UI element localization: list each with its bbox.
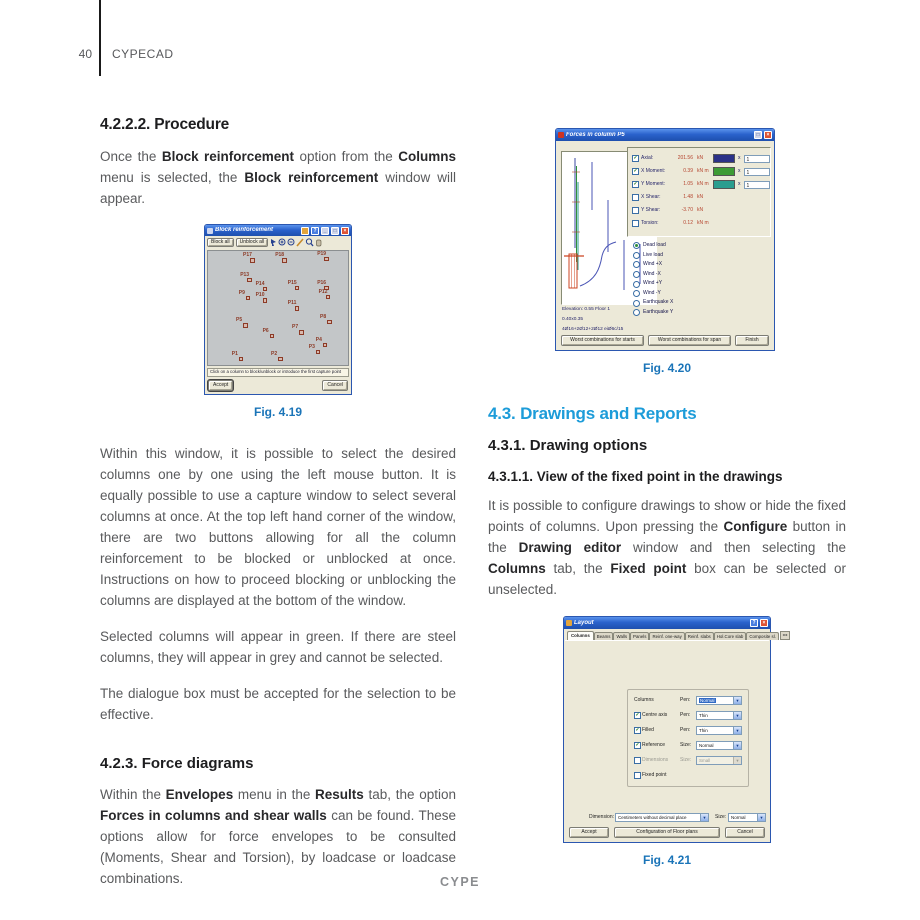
factor-input[interactable]: 1	[744, 155, 770, 163]
loadcase-option[interactable]: Dead load	[633, 241, 673, 251]
radio-button[interactable]	[633, 281, 640, 288]
maximize-button[interactable]: □	[754, 131, 762, 139]
window-body: ColumnsPen:Normal▼✓Centre axisPen:Thin▼✓…	[565, 640, 769, 841]
window-icon	[207, 228, 213, 234]
heading-fixed-point: 4.3.1.1. View of the fixed point in the …	[488, 468, 846, 485]
color-swatch[interactable]	[713, 167, 735, 176]
heading-force-diagrams: 4.2.3. Force diagrams	[100, 755, 456, 773]
checkbox[interactable]	[632, 207, 639, 214]
tab-strip: ColumnsBeamsWallsPanelsReinf. one-wayRei…	[565, 629, 769, 640]
column-point-p18[interactable]: P18	[275, 253, 284, 258]
select-value: Small	[699, 758, 710, 763]
option-label: Reference	[642, 743, 665, 749]
radio-button[interactable]	[633, 309, 640, 316]
loadcase-label: Wind -Y	[643, 291, 661, 297]
loadcase-label: Earthquake Y	[643, 310, 673, 316]
loadcase-list: Dead loadLive loadWind +XWind -XWind +YW…	[633, 241, 673, 318]
column-marker	[270, 334, 275, 339]
option-label: Dimensions	[642, 758, 668, 764]
option-select[interactable]: Small▼	[696, 756, 742, 765]
force-unit: kN	[697, 208, 711, 214]
window-title: Forces in column P5	[566, 132, 752, 139]
size-select[interactable]: Normal▼	[728, 813, 766, 822]
column-marker	[263, 287, 268, 292]
paragraph: The dialogue box must be accepted for th…	[100, 683, 456, 725]
dialog-buttons: Accept Cancel	[205, 378, 351, 394]
option-select[interactable]: Normal▼	[696, 696, 742, 705]
figure-caption: Fig. 4.20	[488, 358, 846, 379]
window-titlebar: Forces in column P5 □ ×	[556, 129, 774, 141]
checkbox[interactable]	[634, 757, 641, 764]
tab-reinf-one-way[interactable]: Reinf. one-way	[649, 632, 684, 640]
option-label: Fixed point	[642, 773, 666, 779]
force-label: Y Shear:	[641, 208, 671, 214]
force-unit: kN	[697, 195, 711, 201]
info-line: 4Ø16+2Ø12+2Ø12 eiØ6c/15	[562, 325, 623, 335]
loadcase-option[interactable]: Earthquake Y	[633, 308, 673, 318]
figure-4-19: Block reinforcement ? _ □ × Block all Un…	[100, 224, 456, 423]
forces-in-column-window: Forces in column P5 □ ×	[555, 128, 775, 351]
param-label: Size:	[680, 743, 691, 749]
option-row: Fixed point	[634, 771, 748, 786]
radio-button[interactable]	[633, 242, 640, 249]
dimension-label: Dimension:	[589, 815, 614, 821]
param-label: Pen:	[680, 728, 690, 734]
force-value: 0.39	[673, 169, 693, 175]
capture-icon[interactable]	[301, 227, 309, 235]
window-body: ✓Axial:201.56kNx1✓X Moment:0.39kN mx1✓Y …	[557, 141, 773, 349]
unblock-all-button[interactable]: Unblock all	[236, 238, 268, 248]
size-label: Size:	[715, 815, 726, 821]
loadcase-label: Live load	[643, 253, 663, 259]
header-divider	[99, 0, 101, 76]
minimize-button[interactable]: _	[321, 227, 329, 235]
close-button[interactable]: ×	[341, 227, 349, 235]
checkbox[interactable]	[632, 220, 639, 227]
heading-drawings-reports: 4.3. Drawings and Reports	[488, 405, 846, 423]
window-title: Layout	[574, 620, 748, 627]
cancel-button[interactable]: Cancel	[725, 827, 765, 838]
paragraph: Within this window, it is possible to se…	[100, 443, 456, 611]
force-row: ✓X Moment:0.39kN mx1	[632, 165, 770, 178]
figure-caption: Fig. 4.19	[100, 402, 456, 423]
heading-drawing-options: 4.3.1. Drawing options	[488, 437, 846, 455]
column-marker	[282, 258, 287, 263]
tab-walls[interactable]: Walls	[613, 632, 630, 640]
column-marker	[327, 320, 332, 325]
paragraph: It is possible to configure drawings to …	[488, 495, 846, 600]
force-value: 201.56	[673, 156, 693, 162]
tab-panels[interactable]: Panels	[630, 632, 649, 640]
worst-combinations-span-button[interactable]: Worst combinations for span	[648, 335, 731, 346]
option-row: ✓ReferenceSize:Normal▼	[634, 741, 748, 756]
param-label: Pen:	[680, 698, 690, 704]
loadcase-label: Wind +Y	[643, 281, 662, 287]
heading-procedure: 4.2.2.2. Procedure	[100, 116, 456, 134]
loadcase-label: Dead load	[643, 243, 666, 249]
loadcase-option[interactable]: Wind +Y	[633, 279, 673, 289]
column-marker	[278, 357, 283, 362]
option-label: Filled	[642, 728, 654, 734]
loadcase-option[interactable]: Live load	[633, 251, 673, 261]
checkbox[interactable]	[632, 194, 639, 201]
column-plan-canvas[interactable]: P17P18P19P13P14P15P16P9P10P12P11P5P8P7P6…	[207, 250, 349, 367]
column-marker	[326, 295, 331, 300]
option-select[interactable]: Thin▼	[696, 711, 742, 720]
status-bar: Click on a column to block/unblock or in…	[207, 368, 349, 377]
color-swatch[interactable]	[713, 180, 735, 189]
column-point-p5[interactable]: P5	[236, 318, 242, 323]
column-point-p19[interactable]: P19	[317, 252, 326, 257]
checkbox[interactable]: ✓	[632, 168, 639, 175]
close-button[interactable]: ×	[760, 619, 768, 627]
tab-columns[interactable]: Columns	[567, 631, 594, 640]
column-marker	[324, 257, 329, 262]
checkbox[interactable]: ✓	[632, 181, 639, 188]
option-select[interactable]: Thin▼	[696, 726, 742, 735]
paragraph: Within the Envelopes menu in the Results…	[100, 784, 456, 889]
figure-caption: Fig. 4.21	[488, 850, 846, 871]
column-marker	[295, 306, 300, 311]
option-row: DimensionsSize:Small▼	[634, 756, 748, 771]
column-point-p9[interactable]: P9	[239, 291, 245, 296]
window-icon	[566, 620, 572, 626]
column-marker	[299, 330, 304, 335]
loadcase-label: Earthquake X	[643, 300, 673, 306]
configuration-floor-plans-button[interactable]: Configuration of Floor plans	[614, 827, 720, 838]
checkbox[interactable]: ✓	[634, 742, 641, 749]
layout-window: Layout ? × ColumnsBeamsWallsPanelsReinf.…	[563, 616, 771, 843]
multiply-sign: x	[738, 182, 741, 188]
color-swatch[interactable]	[713, 154, 735, 163]
column-marker	[263, 298, 268, 303]
radio-button[interactable]	[633, 300, 640, 307]
tab-composite-sl-[interactable]: Composite sl.	[746, 632, 779, 640]
force-value: -3.70	[673, 208, 693, 214]
dialog-buttons: Accept Configuration of Floor plans Canc…	[569, 827, 765, 838]
force-label: Axial:	[641, 156, 671, 162]
option-label: Columns	[634, 698, 654, 704]
force-unit: kN m	[697, 182, 711, 188]
chevron-down-icon: ▼	[733, 697, 741, 704]
column-point-p6[interactable]: P6	[263, 329, 269, 334]
document-page: 40 CYPECAD 4.2.2.2. Procedure Once the B…	[0, 0, 920, 920]
force-label: Torsion:	[641, 221, 671, 227]
finish-button[interactable]: Finish	[735, 335, 769, 346]
param-label: Pen:	[680, 713, 690, 719]
accept-button[interactable]: Accept	[208, 380, 233, 391]
column-point-p17[interactable]: P17	[243, 253, 252, 258]
force-row: X Shear:1.48kN	[632, 191, 770, 204]
chevron-down-icon: ▼	[733, 727, 741, 734]
column-point-p3[interactable]: P3	[309, 345, 315, 350]
column-marker	[246, 296, 251, 301]
select-value: Normal	[699, 743, 714, 748]
page-number: 40	[68, 47, 92, 61]
column-point-p10[interactable]: P10	[256, 293, 265, 298]
tab-reinf-slabs[interactable]: Reinf. slabs	[685, 632, 714, 640]
column-point-p4[interactable]: P4	[316, 338, 322, 343]
window-titlebar: Block reinforcement ? _ □ ×	[205, 225, 351, 236]
loadcase-option[interactable]: Wind +X	[633, 260, 673, 270]
window-titlebar: Layout ? ×	[564, 617, 770, 629]
left-column: 4.2.2.2. Procedure Once the Block reinfo…	[100, 116, 456, 904]
force-row: ✓Axial:201.56kNx1	[632, 152, 770, 165]
multiply-sign: x	[738, 156, 741, 162]
loadcase-option[interactable]: Wind -X	[633, 270, 673, 280]
option-row: ColumnsPen:Normal▼	[634, 696, 748, 711]
multiply-sign: x	[738, 169, 741, 175]
info-line: Elevation: 0.55 Floor 1	[562, 305, 623, 315]
chevron-down-icon: ▼	[700, 814, 708, 821]
column-marker	[247, 278, 252, 283]
column-point-p16[interactable]: P16	[317, 281, 326, 286]
column-marker	[239, 357, 244, 362]
dimension-select[interactable]: Centimeters without decimal place▼	[615, 813, 709, 822]
column-marker	[323, 343, 328, 348]
option-row: ✓FilledPen:Thin▼	[634, 726, 748, 741]
force-label: Y Moment:	[641, 182, 671, 188]
chevron-down-icon: ▼	[733, 757, 741, 764]
maximize-button[interactable]: □	[331, 227, 339, 235]
right-column: Forces in column P5 □ ×	[488, 128, 846, 871]
force-unit: kN m	[697, 169, 711, 175]
force-value: 1.48	[673, 195, 693, 201]
accept-button[interactable]: Accept	[569, 827, 609, 838]
factor-input[interactable]: 1	[744, 168, 770, 176]
select-value: Thin	[699, 713, 708, 718]
column-info: Elevation: 0.55 Floor 10.40x0.354Ø16+2Ø1…	[562, 305, 623, 335]
radio-button[interactable]	[633, 290, 640, 297]
force-label: X Shear:	[641, 195, 671, 201]
column-point-p15[interactable]: P15	[288, 281, 297, 286]
info-line: 0.40x0.35	[562, 315, 623, 325]
loadcase-option[interactable]: Earthquake X	[633, 299, 673, 309]
select-value: Normal	[699, 698, 716, 703]
force-label: X Moment:	[641, 169, 671, 175]
column-point-p2[interactable]: P2	[271, 352, 277, 357]
help-button[interactable]: ?	[311, 227, 319, 235]
worst-combinations-starts-button[interactable]: Worst combinations for starts	[561, 335, 644, 346]
columns-options-group: ColumnsPen:Normal▼✓Centre axisPen:Thin▼✓…	[627, 689, 749, 787]
column-point-p8[interactable]: P8	[320, 315, 326, 320]
select-value: Thin	[699, 728, 708, 733]
loadcase-label: Wind -X	[643, 272, 661, 278]
chevron-down-icon: ▼	[757, 814, 765, 821]
column-marker	[250, 258, 255, 263]
force-unit: kN m	[697, 221, 711, 227]
tab-scroll-arrows[interactable]: ◂ ▸	[780, 631, 790, 640]
column-point-p7[interactable]: P7	[292, 325, 298, 330]
radio-button[interactable]	[633, 252, 640, 259]
checkbox[interactable]: ✓	[634, 727, 641, 734]
chevron-down-icon: ▼	[733, 742, 741, 749]
paragraph: Once the Block reinforcement option from…	[100, 146, 456, 209]
close-button[interactable]: ×	[764, 131, 772, 139]
cancel-button[interactable]: Cancel	[322, 380, 348, 391]
force-row: Y Shear:-3.70kN	[632, 204, 770, 217]
column-marker	[243, 323, 248, 328]
checkbox[interactable]: ✓	[632, 155, 639, 162]
radio-button[interactable]	[633, 271, 640, 278]
help-button[interactable]: ?	[750, 619, 758, 627]
column-marker	[316, 350, 321, 355]
paragraph: Selected columns will appear in green. I…	[100, 626, 456, 668]
loadcase-option[interactable]: Wind -Y	[633, 289, 673, 299]
tab-beams[interactable]: Beams	[594, 632, 614, 640]
force-row: Torsion:0.12kN m	[632, 217, 770, 230]
column-point-p14[interactable]: P14	[256, 282, 265, 287]
option-row: ✓Centre axisPen:Thin▼	[634, 711, 748, 726]
param-label: Size:	[680, 758, 691, 764]
loadcase-label: Wind +X	[643, 262, 662, 268]
dimension-row: Dimension: Centimeters without decimal p…	[565, 813, 769, 824]
factor-input[interactable]: 1	[744, 181, 770, 189]
dialog-buttons: Worst combinations for starts Worst comb…	[561, 335, 769, 346]
force-value: 1.05	[673, 182, 693, 188]
option-select[interactable]: Normal▼	[696, 741, 742, 750]
radio-button[interactable]	[633, 261, 640, 268]
window-icon	[558, 132, 564, 138]
footer-brand: CYPE	[0, 875, 920, 889]
tab-hol-core-slab[interactable]: Hol.Core slab	[714, 632, 747, 640]
option-label: Centre axis	[642, 713, 667, 719]
force-unit: kN	[697, 156, 711, 162]
block-reinforcement-window: Block reinforcement ? _ □ × Block all Un…	[204, 224, 352, 395]
window-title: Block reinforcement	[215, 227, 299, 234]
toolbar: Block all Unblock all	[205, 236, 351, 249]
column-marker	[295, 286, 300, 291]
column-point-p11[interactable]: P11	[288, 301, 297, 306]
force-value: 0.12	[673, 221, 693, 227]
zoom-tools-icons[interactable]	[270, 238, 322, 247]
block-all-button[interactable]: Block all	[207, 238, 234, 248]
checkbox[interactable]: ✓	[634, 712, 641, 719]
forces-panel: ✓Axial:201.56kNx1✓X Moment:0.39kN mx1✓Y …	[627, 147, 771, 237]
chevron-down-icon: ▼	[733, 712, 741, 719]
column-point-p1[interactable]: P1	[232, 352, 238, 357]
column-point-p13[interactable]: P13	[240, 273, 249, 278]
header-brand: CYPECAD	[112, 47, 174, 61]
column-point-p12[interactable]: P12	[319, 290, 328, 295]
force-row: ✓Y Moment:1.05kN mx1	[632, 178, 770, 191]
checkbox[interactable]	[634, 772, 641, 779]
